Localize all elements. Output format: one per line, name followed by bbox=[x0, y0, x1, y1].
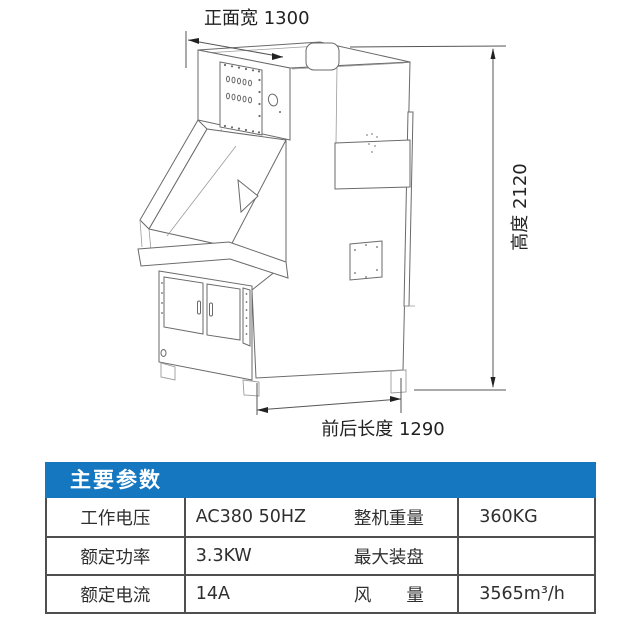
spec-label-cell: 整机重量 bbox=[321, 498, 458, 536]
chute bbox=[140, 120, 286, 251]
spec-label-cell: 风 量 bbox=[321, 574, 458, 612]
table-row: 额定功率 3.3KW 最大装盘 bbox=[47, 536, 594, 574]
spec-table-body: 工作电压 AC380 50HZ 整机重量 360KG 额定功率 3.3KW 最大… bbox=[45, 498, 596, 614]
technical-drawing: 正面宽 1300 高度 2120 前后长度 1290 bbox=[0, 0, 640, 455]
door-handle-left bbox=[198, 301, 201, 314]
spec-value-cell: 360KG bbox=[457, 498, 594, 536]
spec-table-title: 主要参数 bbox=[45, 462, 596, 498]
machine-line-drawing bbox=[138, 42, 415, 396]
table-row: 工作电压 AC380 50HZ 整机重量 360KG bbox=[47, 498, 594, 536]
depth-label: 前后长度 1290 bbox=[321, 419, 445, 440]
door-handle-right bbox=[210, 303, 213, 316]
cabinet bbox=[159, 271, 252, 380]
spec-value-cell bbox=[457, 536, 594, 574]
dimension-depth: 前后长度 1290 bbox=[257, 378, 445, 440]
spec-table: 主要参数 工作电压 AC380 50HZ 整机重量 360KG 额定功率 3.3… bbox=[45, 462, 596, 614]
side-access-plate-lower bbox=[350, 241, 382, 280]
head-panel bbox=[220, 62, 262, 135]
spec-value-cell: 3.3KW bbox=[184, 536, 321, 574]
height-label: 高度 2120 bbox=[510, 163, 531, 251]
spec-label-cell: 最大装盘 bbox=[321, 536, 458, 574]
spec-label-cell: 额定功率 bbox=[47, 536, 184, 574]
spec-value-cell: 3565m³/h bbox=[457, 574, 594, 612]
spec-label-cell: 额定电流 bbox=[47, 574, 184, 612]
spec-value-cell: 14A bbox=[184, 574, 321, 612]
table-row: 额定电流 14A 风 量 3565m³/h bbox=[47, 574, 594, 612]
spec-sheet: 正面宽 1300 高度 2120 前后长度 1290 主要参数 工作电压 AC3… bbox=[0, 0, 640, 640]
top-duct bbox=[306, 43, 339, 70]
spec-value-cell: AC380 50HZ bbox=[184, 498, 321, 536]
spec-label-cell: 工作电压 bbox=[47, 498, 184, 536]
front-width-label: 正面宽 1300 bbox=[204, 8, 310, 29]
